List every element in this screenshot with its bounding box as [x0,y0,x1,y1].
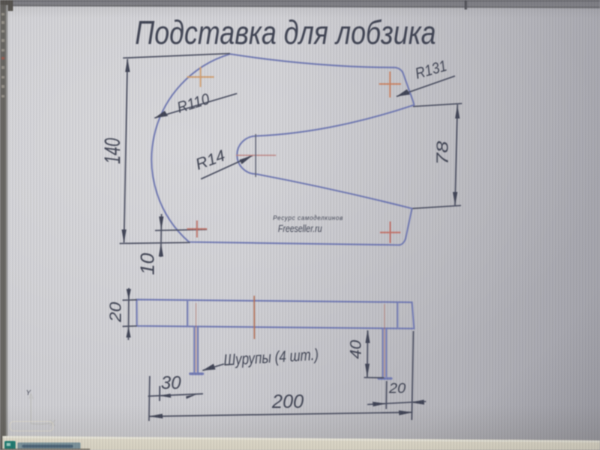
svg-text:R110: R110 [175,91,212,117]
svg-text:40: 40 [348,340,365,359]
svg-text:30: 30 [161,373,181,393]
svg-text:20: 20 [388,380,406,397]
svg-text:200: 200 [271,392,304,413]
svg-text:R131: R131 [413,58,448,83]
svg-text:Ресурс самоделкинов: Ресурс самоделкинов [273,216,343,222]
svg-text:78: 78 [433,140,452,165]
svg-text:20: 20 [106,301,125,323]
svg-text:Подставка для лобзика: Подставка для лобзика [135,14,436,51]
svg-text:Freeseller.ru: Freeseller.ru [278,224,322,235]
svg-text:140: 140 [100,137,125,164]
svg-text:10: 10 [138,253,159,275]
svg-text:Шурупы (4 шт.): Шурупы (4 шт.) [223,347,319,370]
